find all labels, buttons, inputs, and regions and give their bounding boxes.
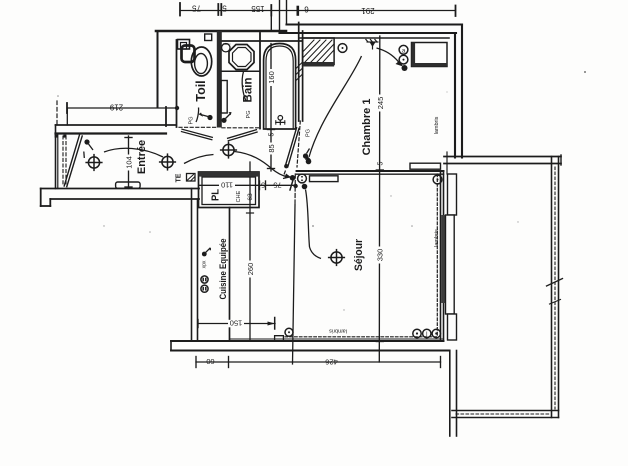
svg-text:110: 110 — [221, 181, 233, 190]
svg-text:330: 330 — [376, 249, 385, 262]
svg-text:245: 245 — [376, 97, 385, 110]
svg-text:426: 426 — [325, 358, 338, 367]
svg-text:219: 219 — [109, 103, 123, 112]
svg-text:5: 5 — [378, 161, 385, 165]
svg-text:CHE: CHE — [236, 190, 242, 202]
svg-text:PG: PG — [306, 129, 312, 137]
svg-text:PG: PG — [189, 117, 195, 125]
svg-text:85: 85 — [267, 144, 276, 152]
svg-text:TE: TE — [176, 173, 183, 182]
svg-text:150: 150 — [230, 319, 243, 328]
svg-text:Séjour: Séjour — [353, 238, 365, 271]
svg-text:63: 63 — [247, 193, 254, 201]
svg-text:xpx: xpx — [201, 260, 207, 268]
svg-text:60: 60 — [206, 357, 214, 366]
svg-text:Toil: Toil — [194, 80, 208, 101]
svg-text:104: 104 — [125, 156, 134, 169]
svg-text:Chambre 1: Chambre 1 — [361, 99, 373, 156]
svg-text:PG: PG — [246, 111, 252, 119]
svg-text:291: 291 — [361, 6, 375, 15]
svg-text:75: 75 — [192, 4, 201, 13]
svg-text:260: 260 — [246, 263, 255, 276]
svg-text:155: 155 — [251, 4, 265, 13]
svg-text:6: 6 — [304, 5, 309, 14]
svg-text:5: 5 — [269, 132, 276, 136]
svg-text:PL: PL — [210, 188, 222, 201]
svg-text:Entrée: Entrée — [136, 140, 148, 174]
svg-text:75: 75 — [273, 181, 281, 190]
svg-text:lambris: lambris — [434, 116, 440, 134]
svg-text:lambris: lambris — [434, 229, 440, 247]
svg-text:l: l — [426, 332, 427, 338]
svg-text:Cuisine Equipée: Cuisine Equipée — [218, 239, 229, 300]
svg-text:lambris: lambris — [329, 327, 347, 333]
svg-text:Bain: Bain — [243, 78, 255, 103]
svg-text:160: 160 — [267, 71, 276, 84]
svg-text:5: 5 — [261, 181, 265, 188]
svg-text:5: 5 — [222, 4, 227, 13]
